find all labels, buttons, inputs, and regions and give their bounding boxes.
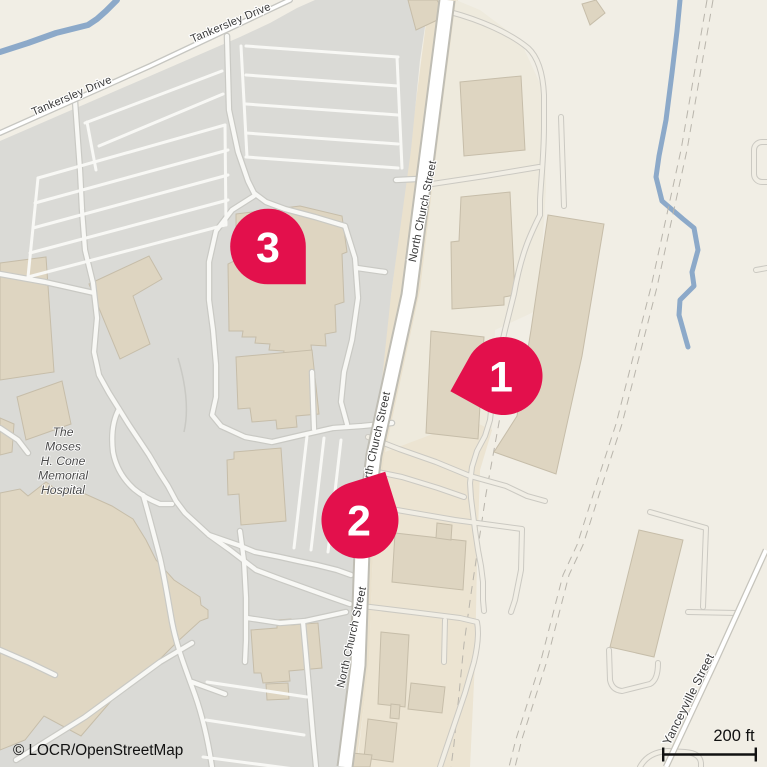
svg-text:The: The (52, 425, 73, 439)
svg-text:Memorial: Memorial (38, 469, 88, 483)
svg-text:200 ft: 200 ft (713, 727, 755, 745)
svg-text:© LOCR/OpenStreetMap: © LOCR/OpenStreetMap (13, 742, 183, 759)
svg-text:2: 2 (347, 498, 371, 546)
svg-text:1: 1 (489, 354, 513, 402)
svg-text:3: 3 (256, 224, 280, 272)
svg-text:Hospital: Hospital (41, 483, 85, 497)
svg-text:H. Cone: H. Cone (41, 454, 86, 468)
svg-text:Moses: Moses (45, 440, 81, 454)
